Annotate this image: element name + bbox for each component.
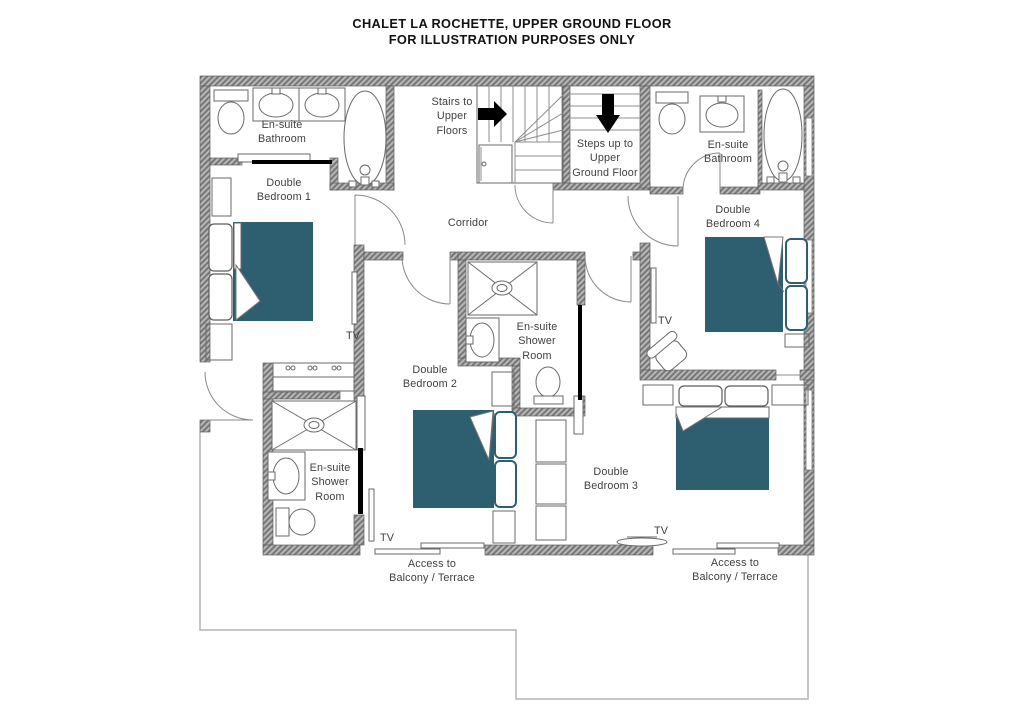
tv-icon-bedroom-1 bbox=[352, 272, 357, 324]
floor-plan-drawing bbox=[0, 0, 1024, 725]
stairs-up-arrow-icon bbox=[478, 101, 507, 127]
tv-icon-bedroom-3 bbox=[617, 537, 667, 546]
shower-icon-mid bbox=[468, 262, 537, 315]
stairs-upper bbox=[477, 86, 563, 183]
sink-icon-shower-left bbox=[268, 452, 305, 500]
toilet-icon-shower-mid bbox=[534, 367, 563, 404]
access-balcony-label-left: Access to Balcony / Terrace bbox=[389, 557, 475, 586]
bathtub-icon-bathroom-right bbox=[764, 89, 802, 183]
sink-icon-bathroom-right bbox=[700, 96, 744, 132]
access-balcony-label-right: Access to Balcony / Terrace bbox=[692, 556, 778, 585]
cupboards-bedroom-3 bbox=[536, 420, 566, 540]
floor-plan: CHALET LA ROCHETTE, UPPER GROUND FLOOR F… bbox=[0, 0, 1024, 725]
tv-label-bedroom-1: TV bbox=[346, 329, 360, 343]
nightstand-bedroom-2-bottom bbox=[493, 511, 515, 543]
toilet-icon-bathroom-right bbox=[656, 92, 688, 134]
nightstand-bedroom-3-left bbox=[643, 385, 673, 405]
double-bed-bedroom-3 bbox=[676, 386, 769, 490]
room-label-steps-up: Steps up to Upper Ground Floor bbox=[572, 137, 637, 180]
steps-down-arrow-icon bbox=[596, 94, 620, 133]
shower-icon-left bbox=[272, 401, 356, 450]
nightstand-bedroom-2-top bbox=[492, 372, 514, 406]
tv-icon-bedroom-4 bbox=[651, 268, 656, 323]
room-label-stairs-to-upper: Stairs to Upper Floors bbox=[432, 95, 473, 138]
room-label-double-bedroom-4: Double Bedroom 4 bbox=[706, 203, 760, 232]
steps-up-area bbox=[568, 94, 640, 133]
room-label-corridor: Corridor bbox=[448, 216, 488, 230]
sliding-door-bathroom-left bbox=[252, 160, 332, 164]
double-bed-bedroom-4 bbox=[705, 237, 807, 332]
balcony-door-right bbox=[673, 543, 779, 554]
tv-label-bedroom-3: TV bbox=[654, 524, 668, 538]
room-label-ensuite-bathroom-right: En-suite Bathroom bbox=[704, 138, 752, 167]
room-label-double-bedroom-1: Double Bedroom 1 bbox=[257, 176, 311, 205]
tv-label-bedroom-2: TV bbox=[380, 531, 394, 545]
dresser-bedroom-1 bbox=[212, 178, 231, 216]
room-label-ensuite-bathroom-left: En-suite Bathroom bbox=[258, 118, 306, 147]
plan-title: CHALET LA ROCHETTE, UPPER GROUND FLOOR F… bbox=[0, 16, 1024, 48]
sliding-door-shower-mid bbox=[578, 305, 582, 400]
toilet-icon-shower-left bbox=[276, 508, 315, 536]
double-sink-icon-bathroom-left bbox=[253, 88, 345, 121]
wardrobe-icon-bedroom-1 bbox=[273, 363, 354, 391]
plan-title-line1: CHALET LA ROCHETTE, UPPER GROUND FLOOR bbox=[0, 16, 1024, 32]
sink-icon-shower-mid bbox=[466, 318, 499, 362]
room-label-ensuite-shower-left: En-suite Shower Room bbox=[310, 461, 351, 504]
tv-icon-bedroom-2 bbox=[369, 489, 374, 541]
nightstand-bedroom-3-right bbox=[772, 385, 808, 405]
toilet-icon-bathroom-left bbox=[214, 90, 248, 134]
sliding-door-shower-left bbox=[358, 448, 363, 514]
room-label-double-bedroom-3: Double Bedroom 3 bbox=[584, 465, 638, 494]
room-label-double-bedroom-2: Double Bedroom 2 bbox=[403, 363, 457, 392]
double-bed-bedroom-2 bbox=[413, 410, 516, 508]
room-label-ensuite-shower-mid: En-suite Shower Room bbox=[517, 320, 558, 363]
double-bed-bedroom-1 bbox=[209, 222, 313, 321]
armchair-icon-bedroom-4 bbox=[645, 330, 692, 376]
bathtub-icon-bathroom-left bbox=[344, 91, 386, 187]
tv-label-bedroom-4: TV bbox=[658, 314, 672, 328]
plan-title-line2: FOR ILLUSTRATION PURPOSES ONLY bbox=[0, 32, 1024, 48]
